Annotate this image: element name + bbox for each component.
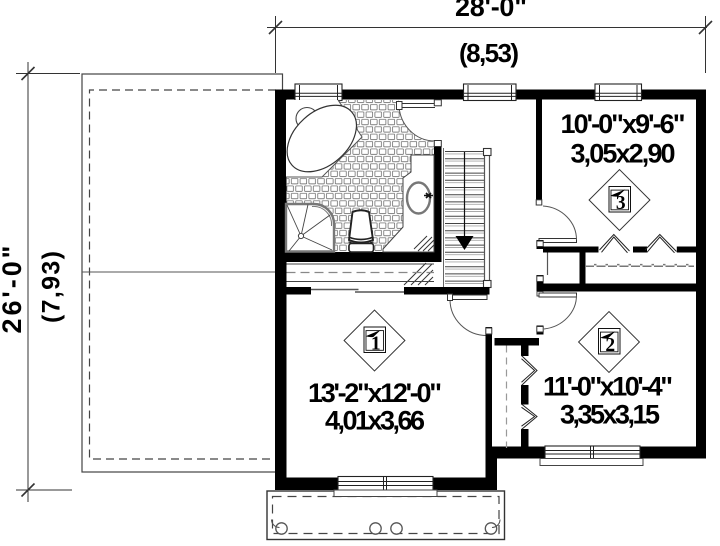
svg-text:2: 2 [605, 335, 615, 356]
svg-text:4,01x3,66: 4,01x3,66 [325, 406, 425, 436]
svg-text:3,35x3,15: 3,35x3,15 [560, 400, 660, 430]
svg-text:11'-0"x10'-4": 11'-0"x10'-4" [543, 372, 673, 402]
svg-text:(7,93): (7,93) [38, 251, 66, 323]
svg-text:1: 1 [371, 334, 381, 355]
svg-text:28'-0": 28'-0" [455, 0, 527, 22]
svg-text:(8,53): (8,53) [459, 38, 519, 68]
svg-text:3,05x2,90: 3,05x2,90 [571, 139, 676, 169]
svg-text:10'-0"x9'-6": 10'-0"x9'-6" [561, 109, 686, 139]
svg-text:13'-2"x12'-0": 13'-2"x12'-0" [308, 378, 442, 408]
svg-text:3: 3 [616, 193, 626, 214]
